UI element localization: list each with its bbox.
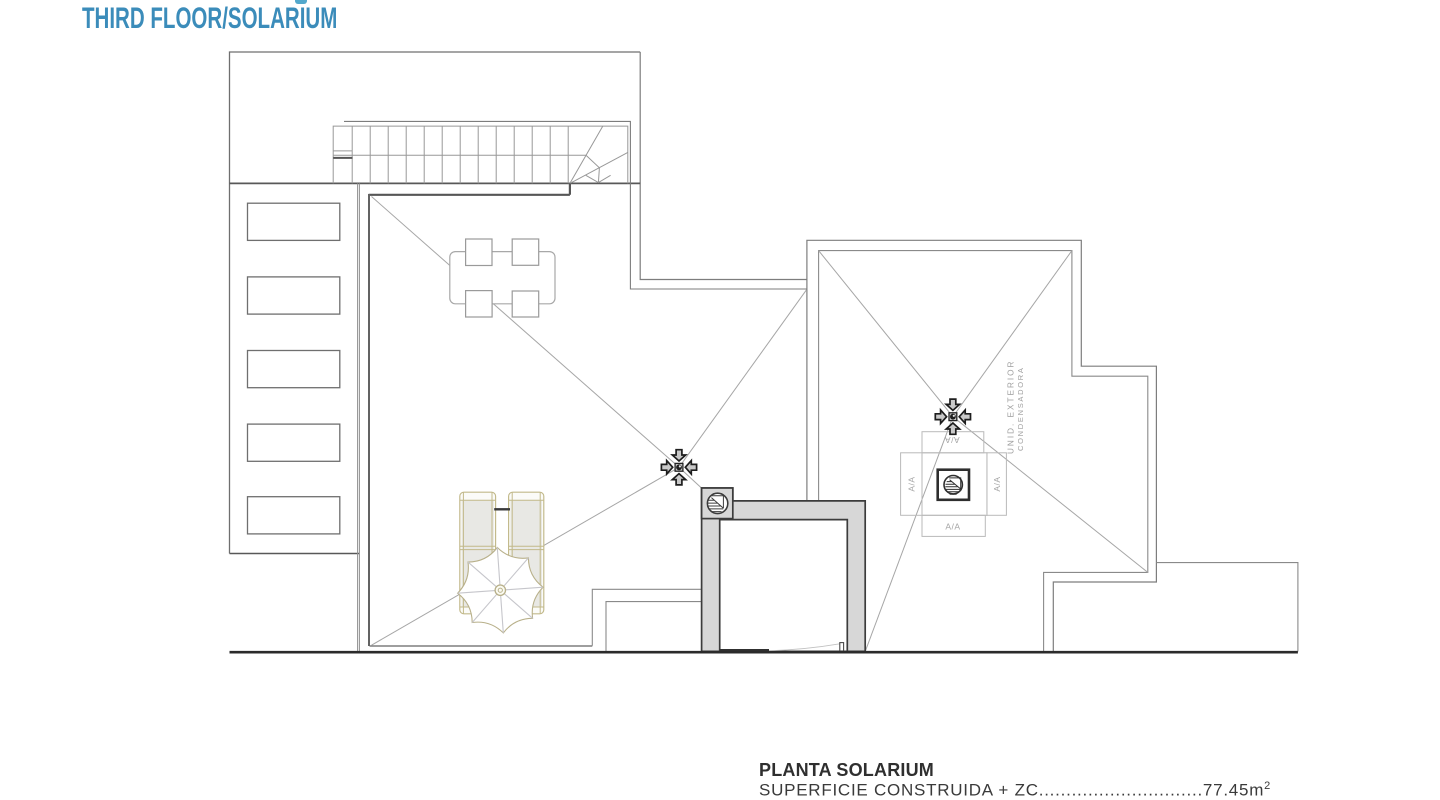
svg-text:A/A: A/A xyxy=(992,476,1002,491)
svg-text:A/A: A/A xyxy=(907,476,917,491)
svg-text:UNID. EXTERIOR: UNID. EXTERIOR xyxy=(1007,360,1016,454)
svg-text:CONDENSADORA: CONDENSADORA xyxy=(1016,366,1025,451)
svg-text:A/A: A/A xyxy=(944,435,959,445)
svg-text:A/A: A/A xyxy=(945,522,960,532)
